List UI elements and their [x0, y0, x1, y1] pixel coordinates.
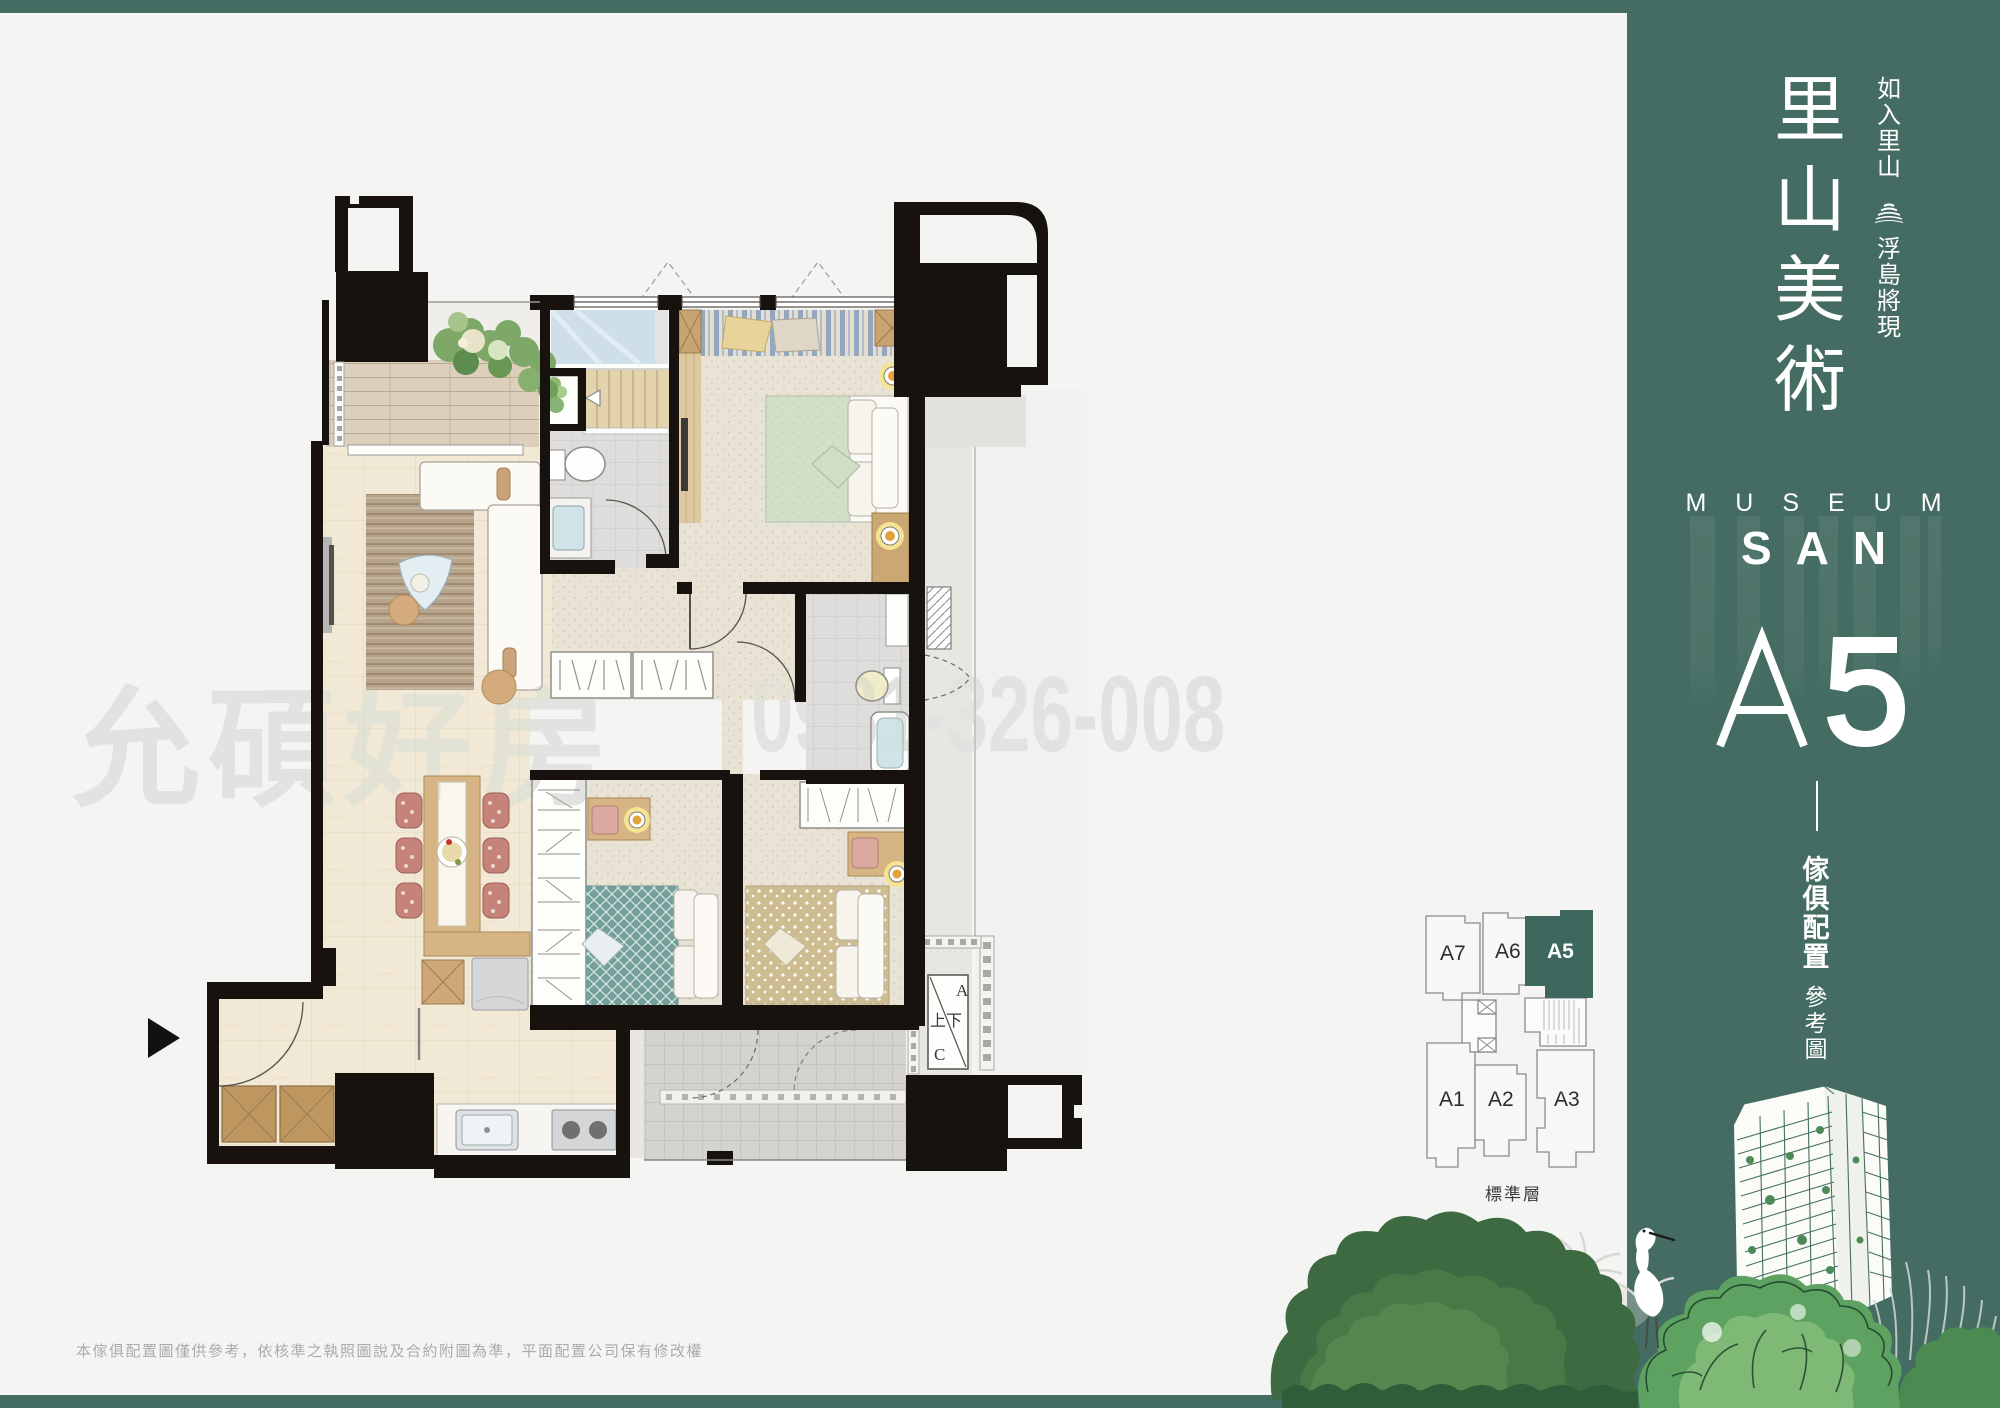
svg-text:A7: A7	[1440, 942, 1466, 965]
svg-text:A: A	[956, 981, 969, 1000]
svg-text:A6: A6	[1495, 940, 1521, 963]
svg-text:上下: 上下	[930, 1012, 962, 1030]
svg-text:C: C	[934, 1045, 945, 1064]
svg-text:A5: A5	[1547, 940, 1574, 963]
